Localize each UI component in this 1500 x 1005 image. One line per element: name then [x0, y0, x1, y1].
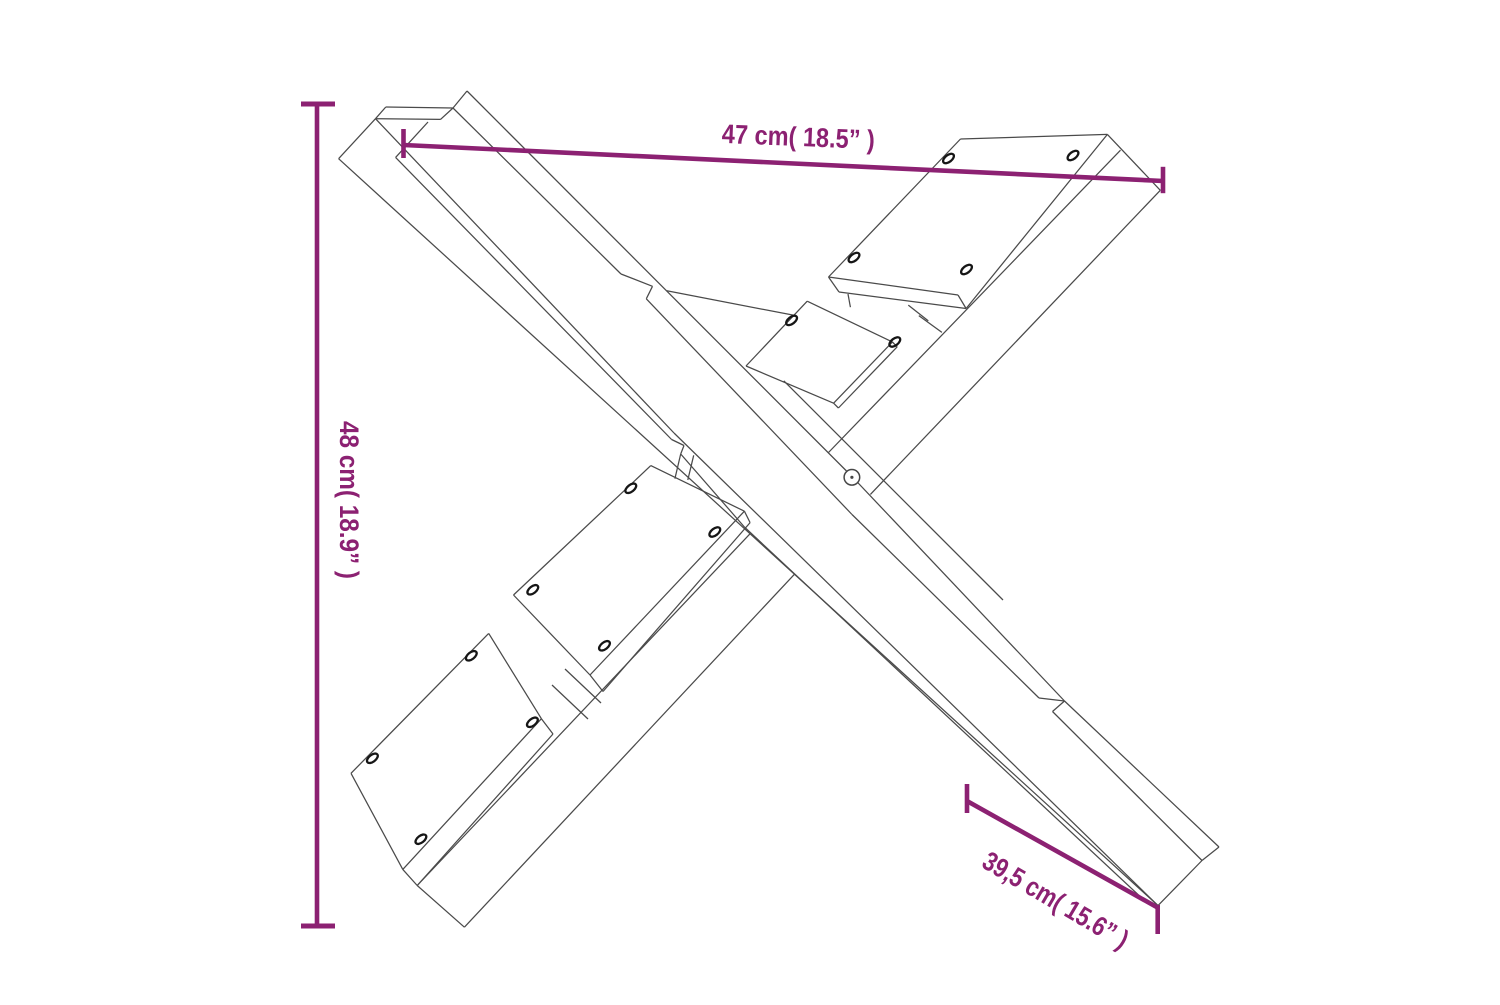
svg-text:47 cm( 18.5” ): 47 cm( 18.5” )	[721, 119, 875, 155]
svg-text:48 cm( 18.9” ): 48 cm( 18.9” )	[334, 421, 364, 579]
